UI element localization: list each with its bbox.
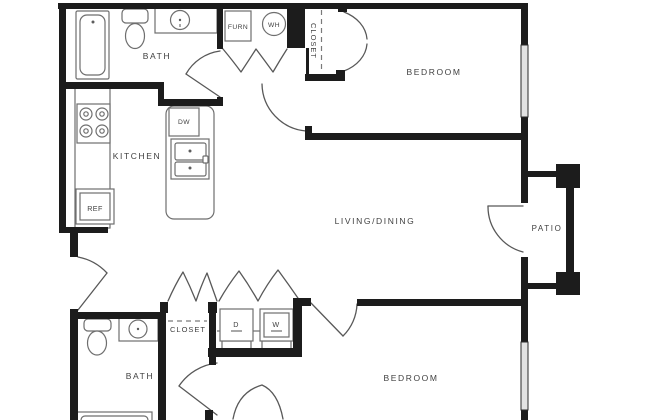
window [521,342,528,410]
wall-segment [208,348,302,357]
toilet-tank [122,9,148,23]
wall-segment [158,313,166,420]
refrigerator-label: REF [87,204,103,213]
patio-rail [526,283,556,289]
wall-segment [70,233,78,257]
wall-segment [208,302,217,313]
wall-segment [521,117,528,203]
wall-segment [70,312,166,319]
wall-segment [293,298,311,306]
wall-segment [305,126,312,134]
wall-segment [70,309,78,420]
kitchen-label: KITCHEN [113,151,162,161]
toilet-bowl [88,331,107,355]
wall-segment [305,74,341,81]
wall-segment [160,302,168,313]
wall-segment [293,298,302,352]
toilet-bowl [126,24,145,49]
wall-segment [59,3,66,233]
patio-post [556,164,580,188]
wall-segment [357,299,528,306]
wall-segment [217,3,223,49]
wall-segment [306,48,309,76]
wall-segment [521,3,528,45]
bathtub-drain [92,21,95,24]
wall-segment [205,410,213,420]
washer-label: W [272,320,279,329]
closet-top-label: CLOSET [309,23,318,59]
wall-segment [158,99,223,106]
bedroom-bottom-label: BEDROOM [383,373,438,383]
wall-segment [305,133,528,140]
patio-label: PATIO [532,224,563,233]
sink-faucet [203,156,208,163]
wall-segment [287,3,305,48]
sink-drain [189,150,192,153]
bedroom-top-label: BEDROOM [406,67,461,77]
patio-rail [566,186,574,274]
bath-top-label: BATH [143,51,171,61]
patio-post [556,272,580,295]
furnace-label: FURN [228,24,248,31]
living-dining-label: LIVING/DINING [335,216,416,226]
bath-bottom-label: BATH [126,371,154,381]
bath-sink-drain [179,19,181,21]
wall-segment [336,70,345,81]
wall-segment [338,3,347,12]
wall-segment [209,313,216,365]
floor-plan: BATH KITCHEN LIVING/DINING BEDROOM PATIO… [0,0,650,420]
wall-segment [521,410,528,420]
wall-segment [59,82,164,89]
window [521,45,528,117]
floor-plan-drawing: BATH KITCHEN LIVING/DINING BEDROOM PATIO… [0,0,650,420]
dryer-label: D [233,320,239,329]
patio-rail [526,171,556,177]
closet-bottom-label: CLOSET [170,325,206,334]
bathtub-basin [81,416,148,420]
dishwasher-label: DW [178,119,190,126]
toilet-tank [84,319,111,331]
water-heater-label: WH [268,22,280,29]
bathtub-basin [80,15,105,75]
sink-drain [189,167,192,170]
wall-segment [59,227,108,233]
bath-sink-drain [137,328,139,330]
